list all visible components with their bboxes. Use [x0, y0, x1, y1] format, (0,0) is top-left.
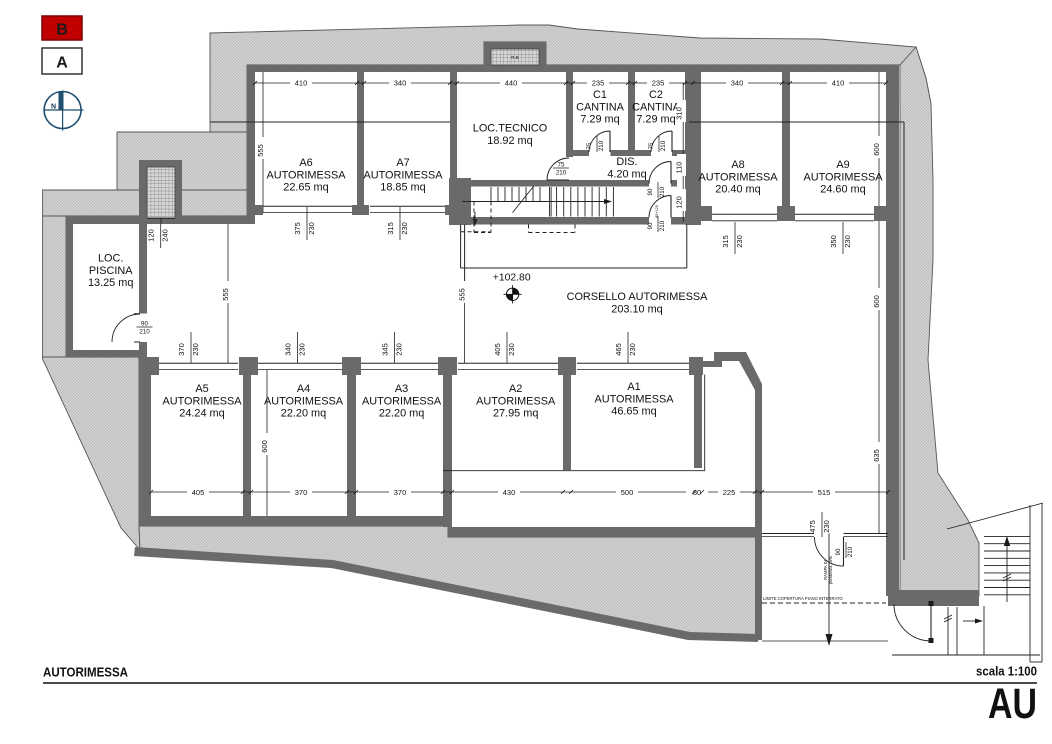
svg-text:A6: A6 [299, 157, 312, 169]
svg-text:230: 230 [507, 343, 516, 356]
svg-text:B: B [56, 22, 68, 39]
svg-text:75: 75 [648, 142, 655, 149]
svg-text:A3: A3 [395, 383, 408, 395]
svg-text:DIS.: DIS. [616, 156, 637, 168]
svg-text:375: 375 [293, 222, 302, 235]
svg-text:75: 75 [558, 162, 565, 169]
svg-text:22.65 mq: 22.65 mq [283, 182, 328, 194]
svg-text:90: 90 [835, 548, 842, 555]
svg-text:345: 345 [380, 343, 389, 356]
svg-text:N: N [51, 104, 56, 111]
svg-text:AUTORIMESSA: AUTORIMESSA [698, 171, 778, 183]
svg-text:515: 515 [818, 488, 831, 497]
svg-text:4.20 mq: 4.20 mq [607, 168, 646, 180]
svg-text:370: 370 [394, 488, 407, 497]
svg-text:13.25 mq: 13.25 mq [88, 277, 133, 289]
svg-text:225: 225 [723, 488, 736, 497]
svg-text:370: 370 [177, 343, 186, 356]
svg-text:230: 230 [843, 235, 852, 248]
svg-text:+102.80: +102.80 [493, 273, 531, 284]
svg-text:210: 210 [847, 546, 854, 557]
svg-text:405: 405 [493, 343, 502, 356]
svg-text:465: 465 [614, 343, 623, 356]
svg-text:A7: A7 [396, 157, 409, 169]
svg-text:CORSELLO AUTORIMESSA: CORSELLO AUTORIMESSA [567, 291, 709, 303]
svg-text:AUTORIMESSA: AUTORIMESSA [803, 171, 883, 183]
svg-text:A9: A9 [836, 159, 849, 171]
svg-text:A1: A1 [627, 381, 640, 393]
svg-text:210: 210 [598, 140, 605, 151]
svg-text:18.85 mq: 18.85 mq [380, 182, 425, 194]
svg-text:210: 210 [659, 186, 666, 197]
svg-text:430: 430 [503, 488, 516, 497]
svg-text:475: 475 [808, 520, 817, 533]
svg-text:555: 555 [256, 144, 265, 157]
svg-text:27.95 mq: 27.95 mq [493, 408, 538, 420]
svg-text:R.B: R.B [511, 55, 519, 60]
svg-text:440: 440 [505, 79, 518, 88]
svg-text:230: 230 [735, 235, 744, 248]
svg-text:315: 315 [386, 222, 395, 235]
svg-text:340: 340 [283, 343, 292, 356]
svg-text:CANTINA: CANTINA [632, 101, 681, 113]
svg-text:A4: A4 [297, 383, 310, 395]
svg-text:120: 120 [675, 196, 684, 209]
svg-text:235: 235 [652, 79, 665, 88]
svg-text:90: 90 [647, 222, 654, 229]
svg-text:80: 80 [693, 488, 701, 497]
svg-text:AUTORIMESSA: AUTORIMESSA [162, 395, 242, 407]
svg-text:235: 235 [592, 79, 605, 88]
svg-text:A5: A5 [195, 383, 208, 395]
svg-text:230: 230 [307, 222, 316, 235]
svg-text:scala 1:100: scala 1:100 [976, 665, 1037, 679]
svg-text:340: 340 [731, 79, 744, 88]
svg-text:315: 315 [721, 235, 730, 248]
svg-text:A8: A8 [731, 159, 744, 171]
svg-text:C1: C1 [593, 89, 607, 101]
svg-text:410: 410 [295, 79, 308, 88]
svg-text:210: 210 [660, 140, 667, 151]
svg-text:22.20 mq: 22.20 mq [379, 408, 424, 420]
svg-text:210: 210 [139, 329, 150, 336]
svg-text:pendenza 15%: pendenza 15% [828, 556, 833, 584]
svg-text:210: 210 [659, 220, 666, 231]
svg-text:230: 230 [191, 343, 200, 356]
svg-text:AU: AU [988, 680, 1037, 728]
svg-text:600: 600 [260, 440, 269, 453]
svg-text:230: 230 [400, 222, 409, 235]
svg-text:555: 555 [221, 288, 230, 301]
svg-text:AUTORIMESSA: AUTORIMESSA [264, 395, 344, 407]
svg-text:C2: C2 [649, 89, 663, 101]
svg-text:PISCINA: PISCINA [89, 265, 133, 277]
svg-text:7.29 mq: 7.29 mq [636, 114, 675, 126]
svg-text:20.40 mq: 20.40 mq [715, 184, 760, 196]
svg-text:90: 90 [141, 321, 148, 328]
svg-text:80+120: 80+120 [655, 205, 659, 218]
svg-text:350: 350 [829, 235, 838, 248]
svg-text:500: 500 [621, 488, 634, 497]
svg-text:24.60 mq: 24.60 mq [820, 184, 865, 196]
svg-text:410: 410 [832, 79, 845, 88]
svg-text:AUTORIMESSA: AUTORIMESSA [43, 665, 129, 680]
svg-text:A2: A2 [509, 383, 522, 395]
svg-text:110: 110 [675, 162, 684, 174]
svg-text:75: 75 [586, 142, 593, 149]
svg-text:LIMITE COPERTURA PIANO INTERRA: LIMITE COPERTURA PIANO INTERRATO [763, 596, 844, 601]
svg-text:A: A [56, 55, 68, 72]
svg-text:635: 635 [872, 449, 881, 462]
svg-text:230: 230 [298, 343, 307, 356]
svg-text:210: 210 [556, 170, 567, 177]
svg-text:22.20 mq: 22.20 mq [281, 408, 326, 420]
svg-text:230: 230 [822, 520, 831, 533]
svg-text:18.92 mq: 18.92 mq [487, 135, 532, 147]
svg-text:600: 600 [872, 295, 881, 308]
svg-text:AUTORIMESSA: AUTORIMESSA [266, 169, 346, 181]
svg-text:7.29 mq: 7.29 mq [580, 114, 619, 126]
svg-text:90: 90 [647, 188, 654, 195]
svg-text:230: 230 [628, 343, 637, 356]
svg-text:120: 120 [147, 229, 156, 242]
svg-text:AUTORIMESSA: AUTORIMESSA [594, 393, 674, 405]
svg-text:600: 600 [872, 143, 881, 156]
svg-text:370: 370 [295, 488, 308, 497]
svg-text:555: 555 [458, 288, 467, 301]
svg-text:405: 405 [192, 488, 205, 497]
svg-text:AUTORIMESSA: AUTORIMESSA [363, 169, 443, 181]
svg-text:230: 230 [395, 343, 404, 356]
svg-text:AUTORIMESSA: AUTORIMESSA [476, 395, 556, 407]
svg-text:AUTORIMESSA: AUTORIMESSA [362, 395, 442, 407]
svg-text:203.10 mq: 203.10 mq [611, 303, 662, 315]
svg-text:340: 340 [394, 79, 407, 88]
svg-text:CANTINA: CANTINA [576, 101, 625, 113]
svg-text:310: 310 [675, 107, 684, 120]
svg-text:46.65 mq: 46.65 mq [611, 406, 656, 418]
svg-text:24.24 mq: 24.24 mq [179, 408, 224, 420]
svg-text:LOC.: LOC. [98, 253, 123, 265]
svg-text:240: 240 [161, 229, 170, 242]
svg-text:LOC.TECNICO: LOC.TECNICO [473, 123, 547, 135]
